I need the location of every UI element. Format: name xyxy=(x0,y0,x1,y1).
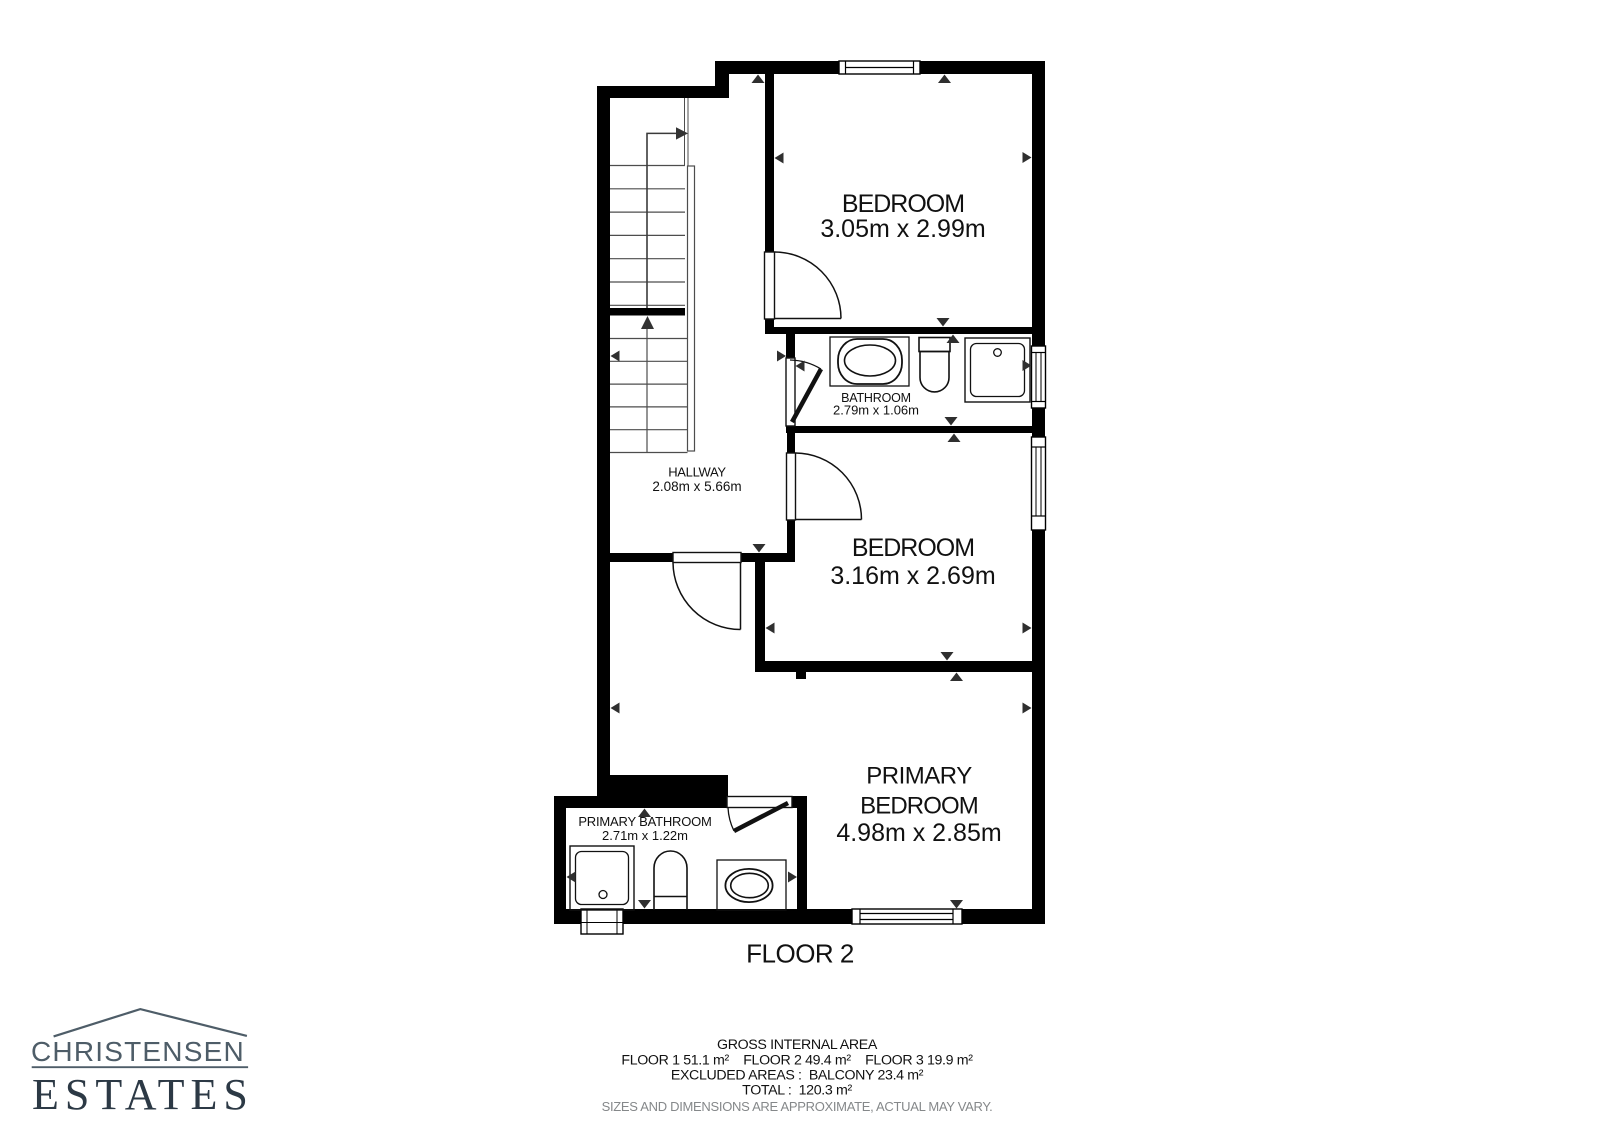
svg-text:FLOOR 2: FLOOR 2 xyxy=(746,939,854,969)
svg-text:BEDROOM: BEDROOM xyxy=(860,793,978,820)
svg-text:BEDROOM: BEDROOM xyxy=(842,190,964,218)
svg-text:SIZES AND DIMENSIONS ARE APPRO: SIZES AND DIMENSIONS ARE APPROXIMATE, AC… xyxy=(602,1099,993,1114)
svg-text:3.16m x 2.69m: 3.16m x 2.69m xyxy=(830,562,995,590)
svg-text:BEDROOM: BEDROOM xyxy=(852,534,974,562)
svg-text:2.71m x 1.22m: 2.71m x 1.22m xyxy=(602,828,688,843)
svg-text:PRIMARY: PRIMARY xyxy=(866,763,972,790)
svg-text:EXCLUDED AREAS : BALCONY 23.4: EXCLUDED AREAS : BALCONY 23.4 m² xyxy=(671,1068,924,1084)
svg-text:PRIMARY BATHROOM: PRIMARY BATHROOM xyxy=(578,814,711,829)
svg-text:ESTATES: ESTATES xyxy=(32,1070,254,1119)
svg-text:FLOOR 1 51.1 m² FLOOR 2 49.: FLOOR 1 51.1 m² FLOOR 2 49.4 m² FLOOR 3 … xyxy=(621,1052,973,1068)
svg-text:CHRISTENSEN: CHRISTENSEN xyxy=(31,1036,245,1067)
svg-text:HALLWAY: HALLWAY xyxy=(668,465,726,480)
svg-text:3.05m x 2.99m: 3.05m x 2.99m xyxy=(820,215,985,243)
svg-text:2.79m x 1.06m: 2.79m x 1.06m xyxy=(833,403,919,418)
svg-text:2.08m x 5.66m: 2.08m x 5.66m xyxy=(652,479,741,494)
svg-text:TOTAL : 120.3 m²: TOTAL : 120.3 m² xyxy=(742,1083,852,1099)
svg-text:4.98m x 2.85m: 4.98m x 2.85m xyxy=(836,819,1001,847)
svg-text:GROSS INTERNAL AREA: GROSS INTERNAL AREA xyxy=(717,1037,878,1053)
